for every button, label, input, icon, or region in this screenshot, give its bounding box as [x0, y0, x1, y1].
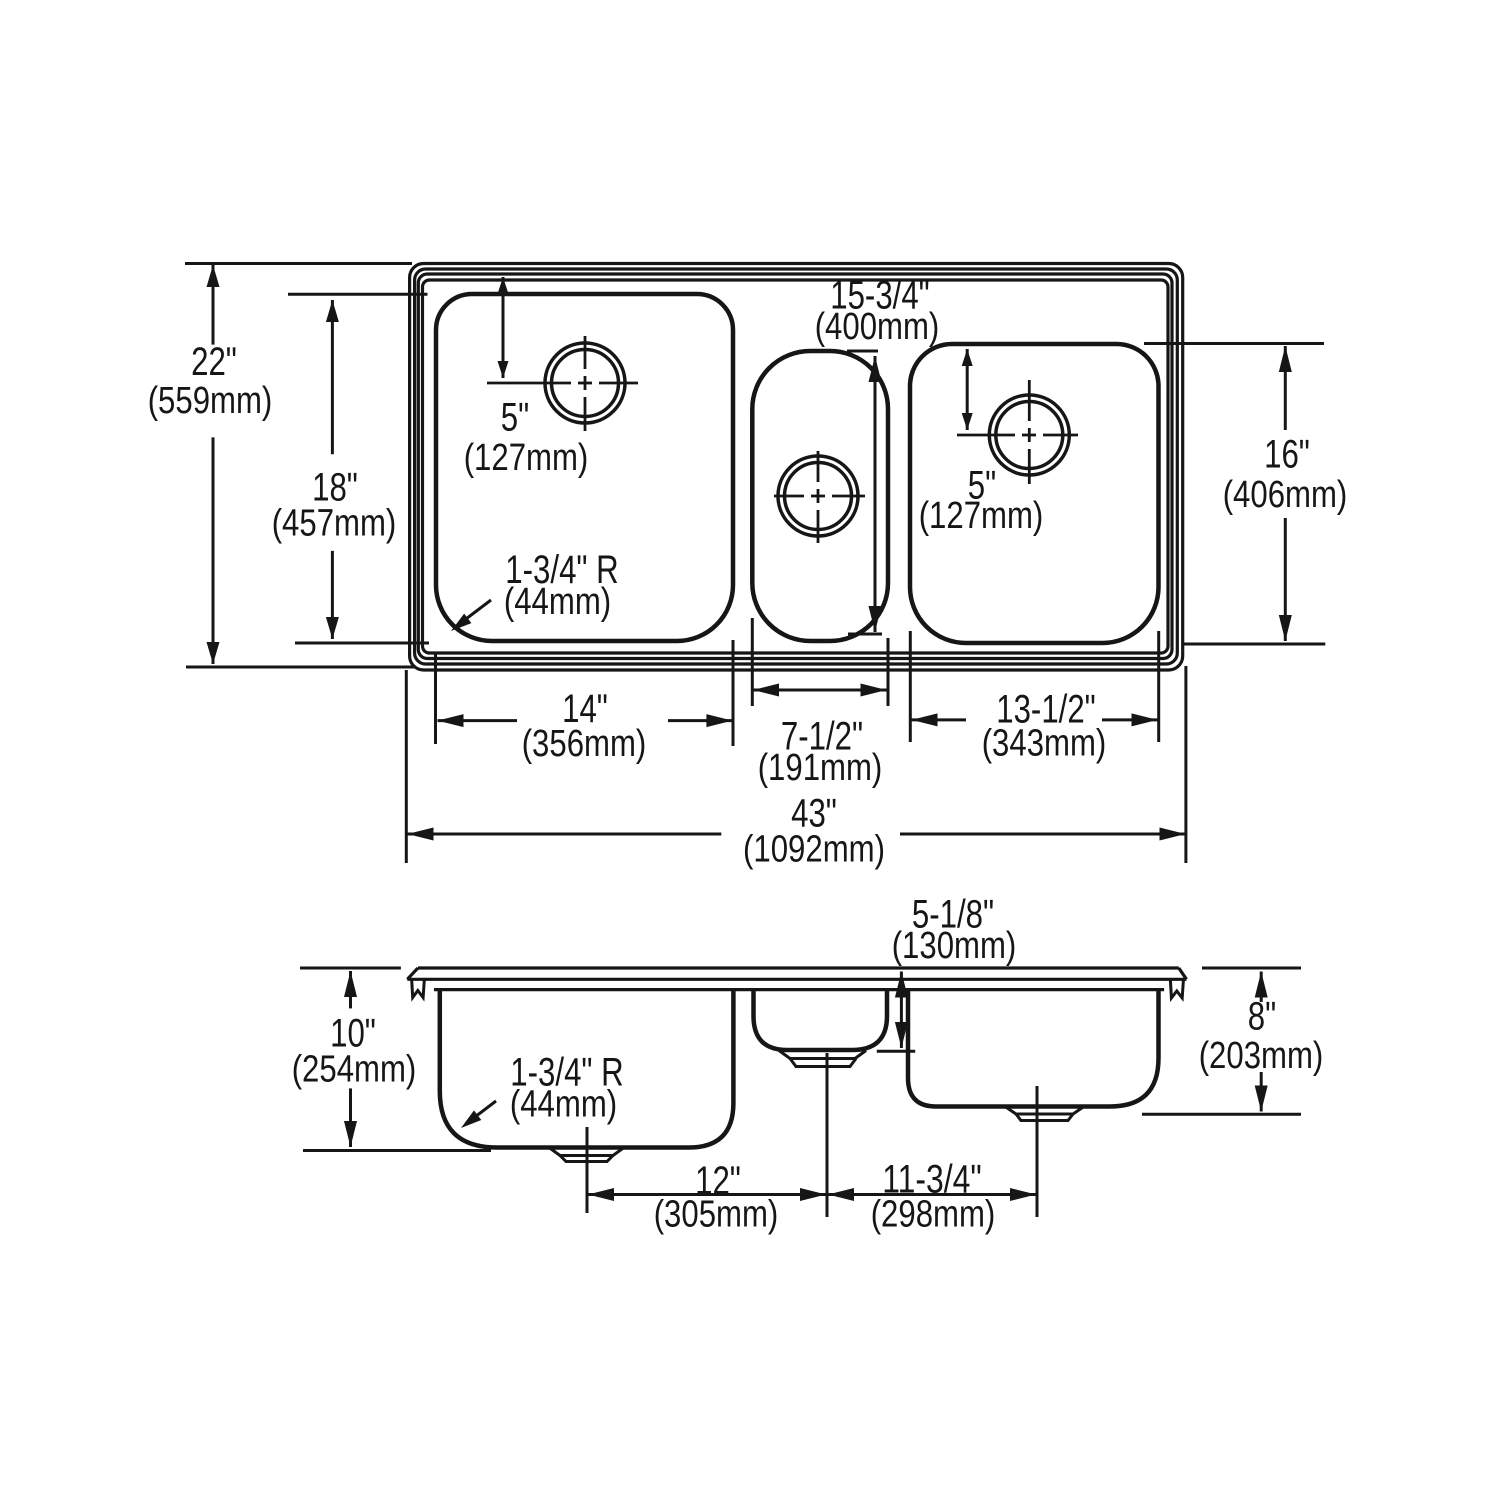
svg-text:(305mm): (305mm)	[654, 1194, 779, 1236]
svg-text:(130mm): (130mm)	[892, 925, 1017, 967]
svg-text:16": 16"	[1264, 433, 1310, 477]
svg-text:(254mm): (254mm)	[292, 1049, 417, 1091]
svg-text:(559mm): (559mm)	[148, 380, 273, 422]
svg-text:(127mm): (127mm)	[464, 437, 589, 479]
svg-text:(191mm): (191mm)	[758, 747, 883, 789]
svg-text:5": 5"	[501, 396, 529, 440]
svg-text:22": 22"	[191, 340, 237, 384]
svg-text:(400mm): (400mm)	[815, 306, 940, 348]
svg-text:(1092mm): (1092mm)	[743, 829, 885, 871]
svg-text:(203mm): (203mm)	[1199, 1035, 1324, 1077]
svg-text:(44mm): (44mm)	[510, 1084, 617, 1126]
svg-text:8": 8"	[1248, 995, 1276, 1039]
svg-text:(298mm): (298mm)	[871, 1194, 996, 1236]
svg-text:(127mm): (127mm)	[919, 495, 1044, 537]
svg-text:(457mm): (457mm)	[272, 503, 397, 545]
svg-text:(343mm): (343mm)	[982, 723, 1107, 765]
svg-text:(356mm): (356mm)	[522, 723, 647, 765]
svg-text:(44mm): (44mm)	[504, 581, 611, 623]
svg-text:(406mm): (406mm)	[1223, 474, 1348, 516]
